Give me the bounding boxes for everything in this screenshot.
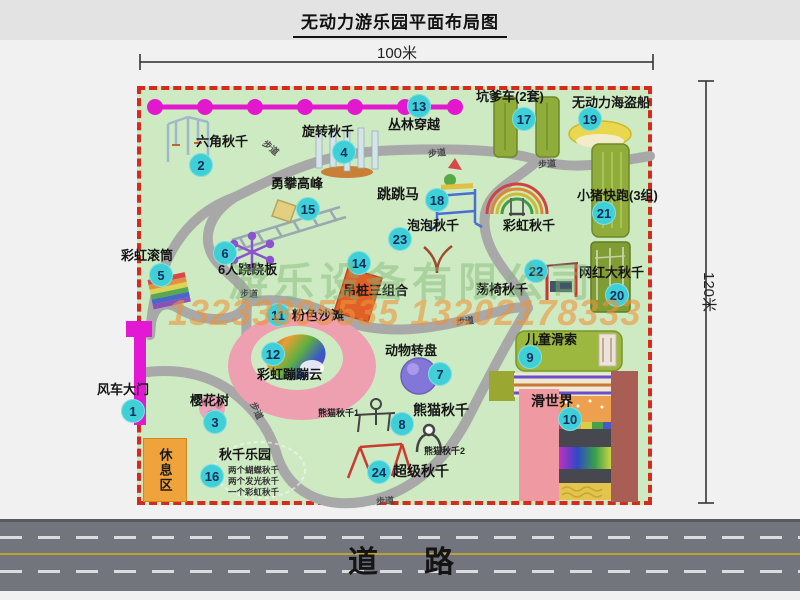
attraction-24-label: 超级秋千 [393,464,449,478]
attraction-1-badge: 1 [121,399,145,423]
attraction-7-label: 动物转盘 [385,344,437,357]
swing-park-note-3: 一个彩虹秋千 [228,487,279,498]
dimension-width-label: 100米 [377,42,417,63]
attraction-5-badge: 5 [149,263,173,287]
attraction-2-badge: 2 [189,153,213,177]
attraction-16-label: 秋千乐园 [219,448,271,461]
attraction-11-label: 粉色沙滩 [292,309,344,322]
attraction-11-badge: 11 [266,303,290,327]
attraction-4-label: 旋转秋千 [302,125,354,138]
attraction-6-label: 6人跷跷板 [218,263,277,276]
attraction-7-badge: 7 [428,362,452,386]
swing-park-notes: 两个蝴蝶秋千 两个发光秋千 一个彩虹秋千 [228,465,279,498]
attraction-3-badge: 3 [203,410,227,434]
attraction-9-label: 儿童滑索 [525,333,577,346]
trail-label-7: 步道 [376,493,395,507]
attraction-21-label: 小猪快跑(3组) [577,189,658,202]
attraction-6-badge: 6 [213,241,237,265]
attraction-20-badge: 20 [605,283,629,307]
page-title: 无动力游乐园平面布局图 [0,8,800,38]
attraction-22-label: 荡椅秋千 [476,283,528,296]
attraction-23-badge: 23 [388,227,412,251]
trail-label-4: 步道 [240,287,258,300]
attraction-9-badge: 9 [518,345,542,369]
attraction-20-label: 网红大秋千 [579,266,644,279]
attraction-15-label: 勇攀高峰 [271,177,323,190]
swing-park-note-1: 两个蝴蝶秋千 [228,465,279,476]
attraction-15-badge: 15 [296,197,320,221]
attraction-21-badge: 21 [592,201,616,225]
panda-swing-2-label: 熊猫秋千2 [424,444,465,457]
trail-label-2: 步道 [427,145,446,160]
attraction-4-badge: 4 [332,140,356,164]
panda-swing-1-label: 熊猫秋千1 [318,406,359,419]
attraction-19-badge: 19 [578,107,602,131]
rainbow-swing-label: 彩虹秋千 [503,219,555,232]
attraction-17-badge: 17 [512,107,536,131]
attraction-10-badge: 10 [558,407,582,431]
dimension-height-label: 120米 [699,272,720,312]
attraction-8-badge: 8 [390,412,414,436]
attraction-18-badge: 18 [425,188,449,212]
rest-area: 休息区 [143,438,187,502]
attraction-1-label: 风车大门 [97,383,149,396]
road: 道路 [0,519,800,591]
attraction-3-label: 樱花树 [190,394,229,407]
attraction-10-label: 滑世界 [531,394,573,408]
attraction-14-label: 吊桩三组合 [343,284,408,297]
attraction-17-label: 坑爹车(2套) [476,90,544,103]
attraction-12-badge: 12 [261,342,285,366]
attraction-22-badge: 22 [524,259,548,283]
attraction-12-label: 彩虹蹦蹦云 [257,368,322,381]
trail-label-3: 步道 [538,156,557,170]
attraction-8-label: 熊猫秋千 [413,403,469,417]
attraction-24-badge: 24 [367,460,391,484]
road-label: 道路 [348,537,500,581]
swing-park-note-2: 两个发光秋千 [228,476,279,487]
trail-label-5: 步道 [455,313,474,328]
attraction-14-badge: 14 [347,251,371,275]
attraction-19-label: 无动力海盗船 [572,96,650,109]
attraction-16-badge: 16 [200,464,224,488]
attraction-5-label: 彩虹滚筒 [121,249,173,262]
attraction-18-label: 跳跳马 [377,187,419,201]
attraction-13-badge: 13 [407,94,431,118]
attraction-2-label: 六角秋千 [196,135,248,148]
attraction-13-label: 丛林穿越 [388,118,440,131]
attraction-23-label: 泡泡秋千 [407,219,459,232]
